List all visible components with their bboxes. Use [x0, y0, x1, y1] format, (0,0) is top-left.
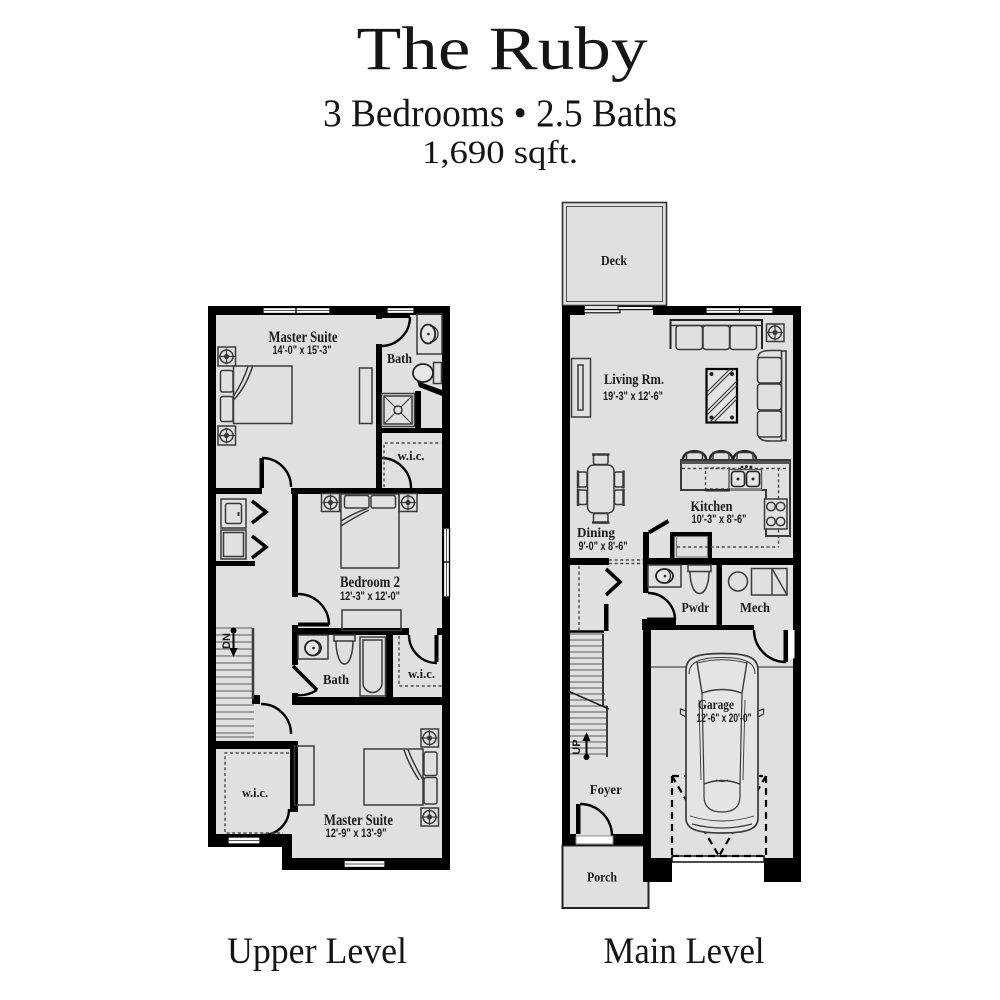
svg-text:1,690 sqft.: 1,690 sqft.	[422, 135, 578, 171]
svg-text:Main Level: Main Level	[604, 931, 765, 972]
svg-text:3 Bedrooms • 2.5 Baths: 3 Bedrooms • 2.5 Baths	[323, 92, 677, 135]
svg-text:12'-9" x 13'-9": 12'-9" x 13'-9"	[326, 828, 387, 840]
svg-text:Bath: Bath	[387, 352, 412, 367]
svg-text:Living Rm.: Living Rm.	[604, 372, 664, 388]
svg-text:Foyer: Foyer	[590, 783, 622, 798]
svg-text:Kitchen: Kitchen	[691, 499, 733, 515]
svg-text:Dining: Dining	[577, 526, 615, 541]
svg-text:9'-0" x 8'-6": 9'-0" x 8'-6"	[579, 541, 628, 553]
svg-text:Mech: Mech	[740, 601, 770, 616]
svg-text:Master Suite: Master Suite	[269, 329, 338, 346]
svg-text:Pwdr: Pwdr	[682, 601, 710, 616]
svg-text:w.i.c.: w.i.c.	[398, 448, 425, 463]
svg-text:w.i.c.: w.i.c.	[408, 666, 435, 681]
svg-text:Bedroom 2: Bedroom 2	[340, 574, 400, 591]
svg-text:14'-0" x 15'-3": 14'-0" x 15'-3"	[273, 345, 332, 357]
svg-text:DN: DN	[221, 633, 233, 649]
svg-text:Porch: Porch	[587, 871, 617, 886]
svg-text:10'-3" x 8'-6": 10'-3" x 8'-6"	[692, 514, 747, 526]
svg-text:Upper Level: Upper Level	[227, 931, 407, 972]
svg-text:Bath: Bath	[323, 673, 349, 688]
svg-text:Garage: Garage	[698, 698, 734, 713]
svg-text:12'-6" x 20'-0": 12'-6" x 20'-0"	[697, 713, 752, 725]
svg-text:UP: UP	[571, 739, 583, 754]
svg-text:19'-3" x 12'-6": 19'-3" x 12'-6"	[603, 391, 663, 403]
svg-text:Master Suite: Master Suite	[324, 812, 393, 829]
svg-text:Deck: Deck	[601, 254, 627, 269]
svg-text:The Ruby: The Ruby	[357, 16, 649, 83]
svg-text:12'-3" x 12'-0": 12'-3" x 12'-0"	[340, 591, 400, 603]
svg-text:w.i.c.: w.i.c.	[242, 785, 268, 800]
